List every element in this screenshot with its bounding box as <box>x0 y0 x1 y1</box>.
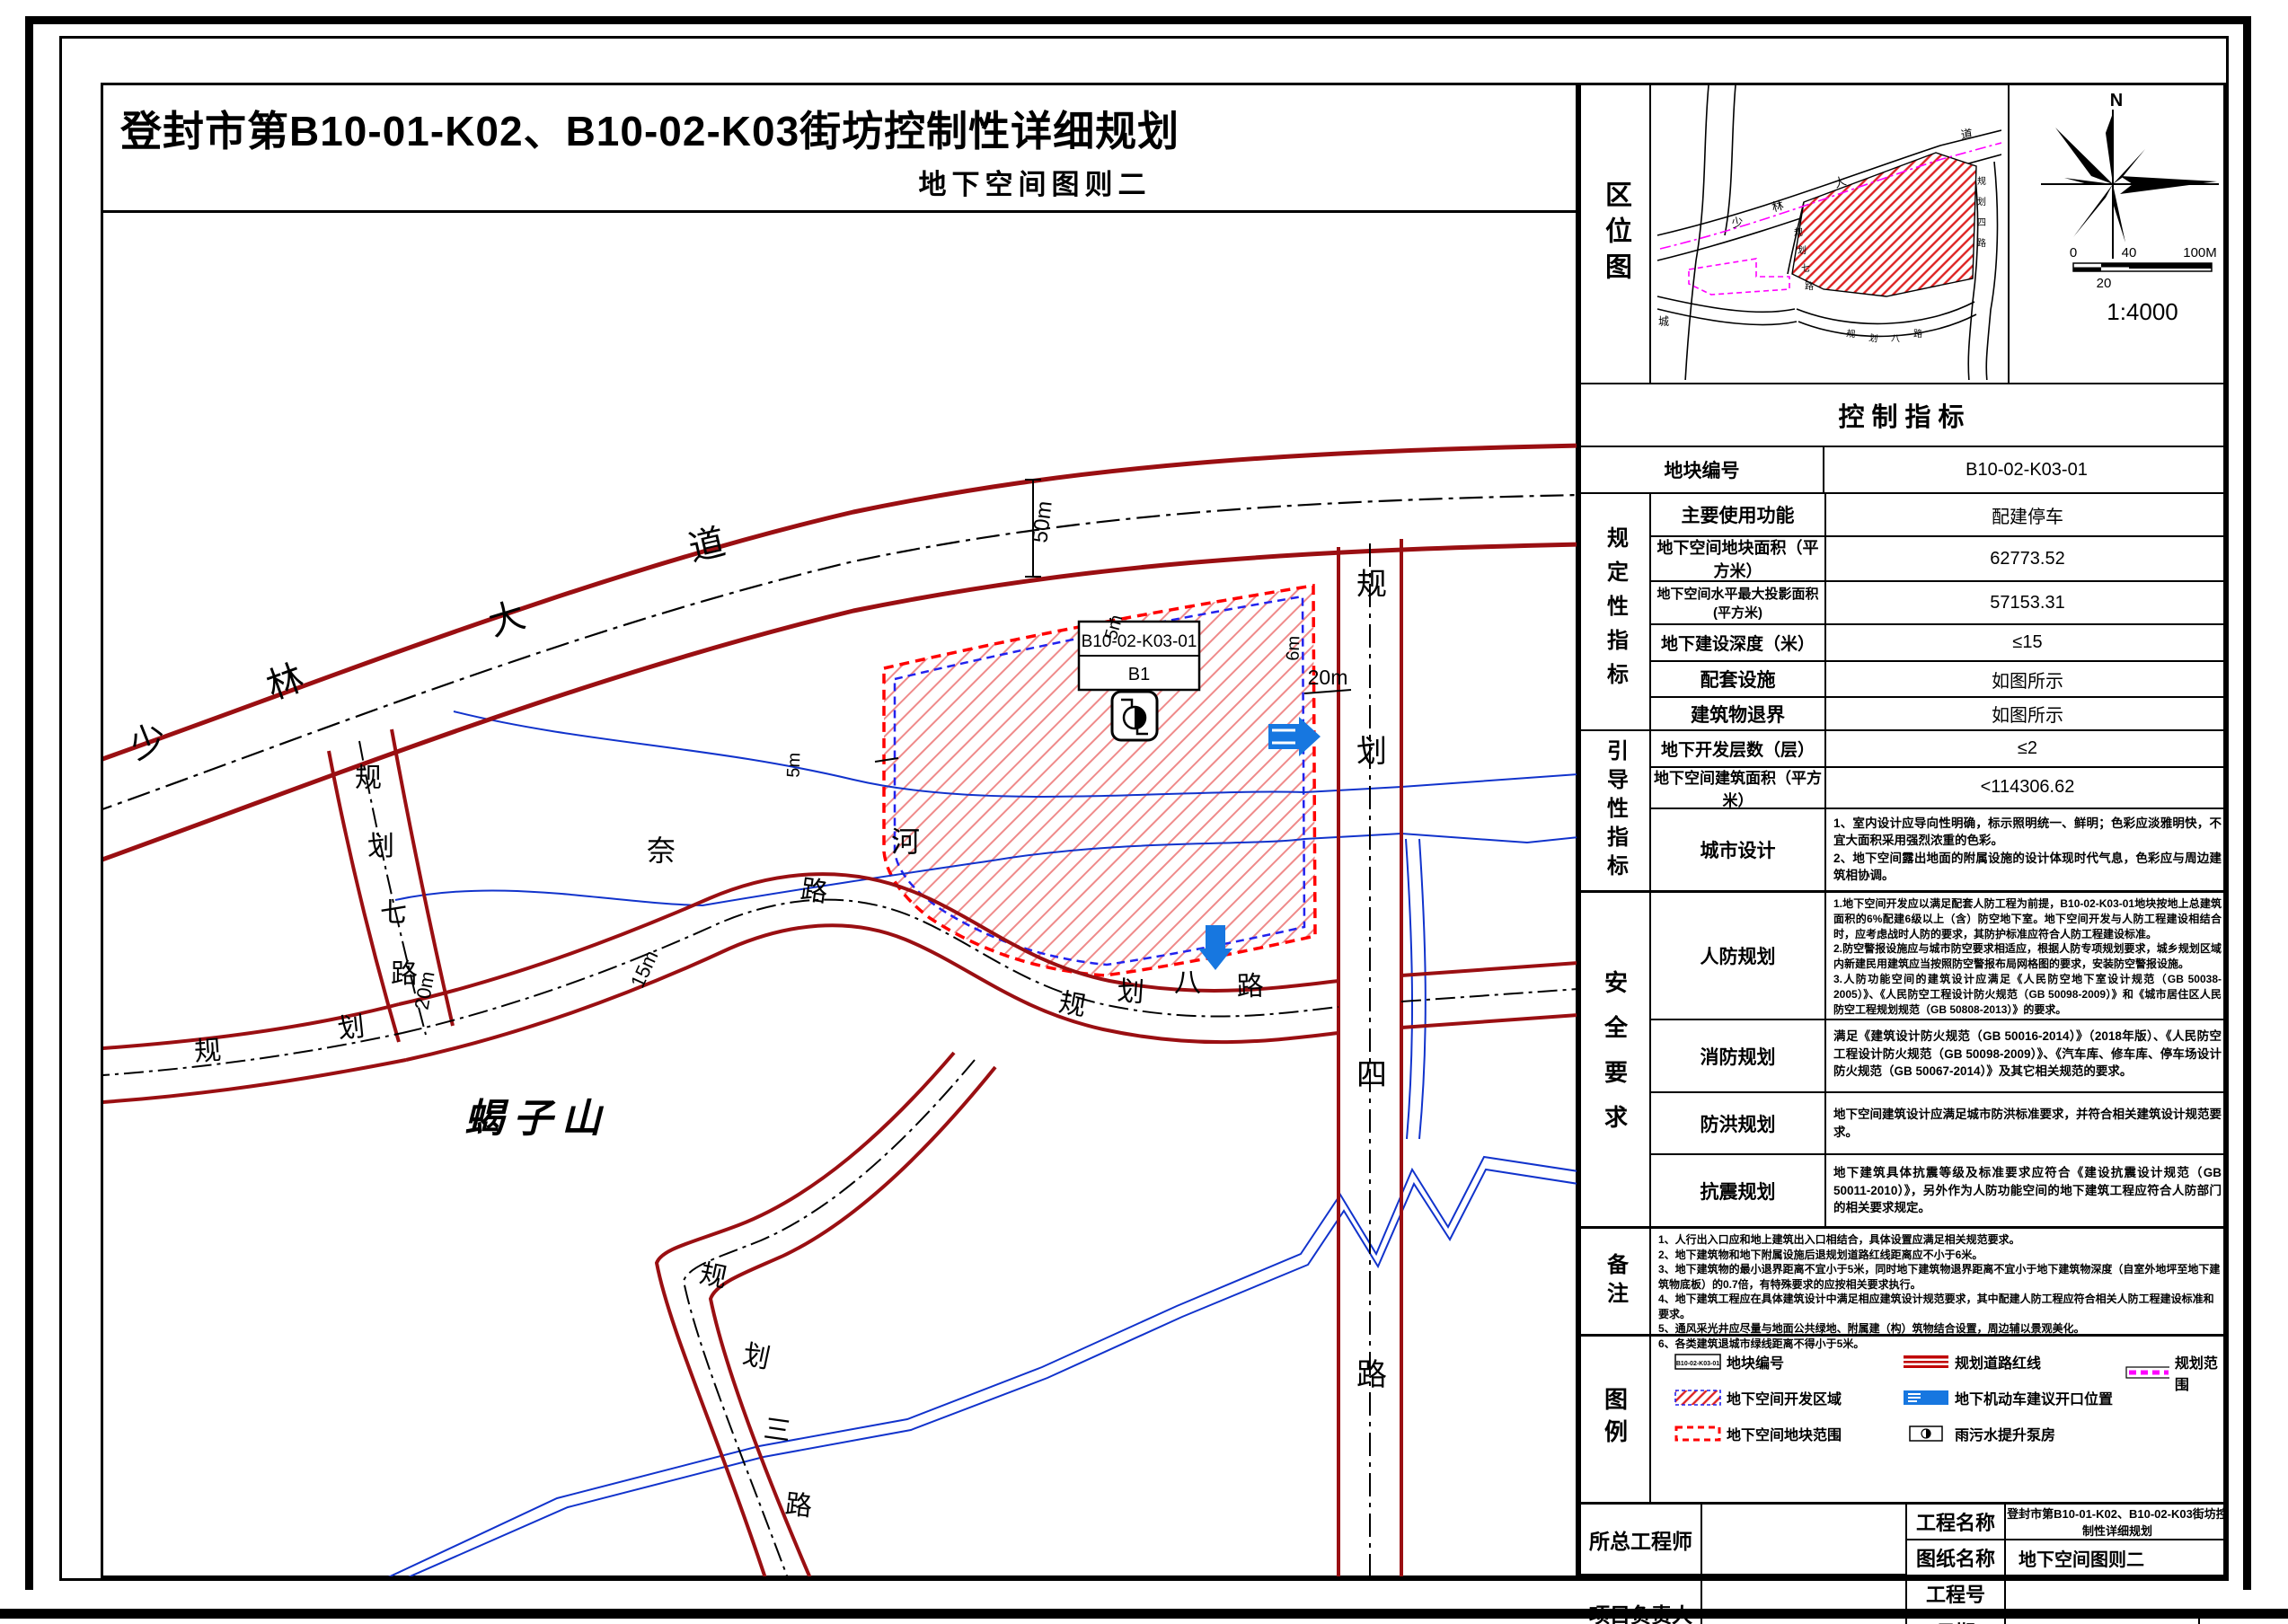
row-value: ≤2 <box>1826 731 2229 766</box>
drawing-name-label: 图纸名称 <box>1907 1540 2006 1575</box>
road-guihua8 <box>90 874 1578 1103</box>
plot-code-value: B10-02-K03-01 <box>1824 447 2229 492</box>
map-dimension-label: 15m <box>626 947 663 991</box>
plan-sheet: 登封市第B10-01-K02、B10-02-K03街坊控制性详细规划 地下空间图… <box>0 0 2288 1624</box>
map-dimension-label: 50m <box>1028 499 1056 544</box>
group-safety: 安全要求 <box>1581 893 1651 1226</box>
date-value: 2020.09 <box>2006 1612 2200 1624</box>
map-road-label: 规 <box>1056 988 1088 1022</box>
row-label: 地下空间水平最大投影面积(平方米) <box>1651 582 1826 623</box>
map-road-label: 奈 <box>647 834 676 867</box>
location-map-cell <box>1651 85 2010 383</box>
map-road-label: 路 <box>1356 1358 1387 1392</box>
legend-label: 图例 <box>1581 1337 1651 1502</box>
map-road-label: 划 <box>336 1012 366 1045</box>
legend-item: 地下机动车建议开口位置 <box>1903 1387 2113 1408</box>
road-guihua3-centerline <box>684 1060 975 1578</box>
row-label: 地下空间地块面积（平方米） <box>1651 537 1826 580</box>
map-road-label: 道 <box>685 522 729 569</box>
road-redline-icon <box>1903 1354 1949 1370</box>
legend-item: 规划范围 <box>2125 1351 2229 1394</box>
legend-item: 雨污水提升泵房 <box>1903 1423 2055 1444</box>
map-road-label: 八 <box>1174 968 1201 998</box>
row-label: 城市设计 <box>1651 809 1826 890</box>
row-label: 消防规划 <box>1651 1020 1826 1091</box>
drawing-name-value: 地下空间图则二 <box>2006 1540 2229 1575</box>
group-guiding: 引导性指标 <box>1581 731 1651 890</box>
row-value: ≤15 <box>1826 625 2229 659</box>
plot-code-text: B10-02-K03-01 <box>1082 632 1197 651</box>
river-south-channel <box>386 1157 1578 1578</box>
project-number-value <box>2006 1576 2229 1611</box>
map-road-label: 大 <box>484 596 530 644</box>
plot-label-box: B10-02-K03-01 B1 <box>1079 622 1199 690</box>
map-road-label: 蝎子山 <box>464 1097 610 1141</box>
project-number-label: 工程号 <box>1907 1576 2006 1611</box>
map-road-label: 路 <box>1236 971 1264 1002</box>
legend-item: 地下空间地块范围 <box>1674 1423 1842 1444</box>
map-road-label: 三 <box>762 1414 792 1447</box>
project-manager-value <box>1702 1575 1907 1624</box>
chief-engineer-value <box>1702 1505 1907 1574</box>
row-label: 防洪规划 <box>1651 1093 1826 1153</box>
urban-design-text: 1、室内设计应导向性明确，标示照明统一、鲜明；色彩应淡雅明快，不宜大面积采用强烈… <box>1826 809 2229 890</box>
project-name-value: 登封市第B10-01-K02、B10-02-K03街坊控制性详细规划 <box>2006 1505 2229 1539</box>
plot-scope-icon <box>1674 1425 1721 1442</box>
row-value: 如图所示 <box>1826 662 2229 696</box>
seismic-text: 地下建筑具体抗震等级及标准要求应符合《建设抗震设计规范（GB 50011-201… <box>1826 1155 2229 1226</box>
map-road-label: 七 <box>380 898 407 928</box>
pump-house-icon <box>1903 1425 1949 1442</box>
plot-code-symbol-icon: B10-02-K03-01 <box>1674 1354 1721 1370</box>
date-label: 日期 <box>1907 1612 2006 1624</box>
map-road-label: 划 <box>1117 976 1145 1008</box>
row-value: 配建停车 <box>1826 494 2229 535</box>
map-road-label: 四 <box>1356 1058 1387 1092</box>
plot-code-label: 地块编号 <box>1581 447 1824 492</box>
legend-items: B10-02-K03-01 地块编号 规划道路红线 规划范围 地下空间开发区域 <box>1651 1337 2229 1502</box>
legend-item: 规划道路红线 <box>1903 1351 2041 1372</box>
group-regulatory: 规定性指标 <box>1581 494 1651 729</box>
right-panel: 区位图 控制指标 地块编号 B10-02-K03-01 规定性指标 主要使用功能… <box>1578 83 2226 1578</box>
svg-text:B10-02-K03-01: B10-02-K03-01 <box>1676 1361 1719 1367</box>
pump-station-icon <box>1112 692 1157 740</box>
map-road-label: 河 <box>891 825 920 858</box>
flood-control-text: 地下空间建筑设计应满足城市防洪标准要求，并符合相关建筑设计规范要求。 <box>1826 1093 2229 1153</box>
row-label: 地下空间建筑面积（平方米） <box>1651 768 1826 808</box>
map-road-label: 规 <box>697 1258 729 1293</box>
row-value: <114306.62 <box>1826 768 2229 808</box>
notes-text: 1、人行出入口应和地上建筑出入口相结合，具体设置应满足相关规范要求。 2、地下建… <box>1651 1229 2229 1334</box>
compass-cell <box>2010 85 2229 383</box>
row-value: 62773.52 <box>1826 537 2229 580</box>
row-label: 人防规划 <box>1651 893 1826 1019</box>
row-label: 建筑物退界 <box>1651 698 1826 729</box>
planning-scope-icon <box>2125 1364 2169 1381</box>
vehicle-access-icon <box>1903 1390 1949 1406</box>
map-road-label: 规 <box>355 763 382 793</box>
legend-item: 地下空间开发区域 <box>1674 1387 1842 1408</box>
row-label: 配套设施 <box>1651 662 1826 696</box>
fire-protection-text: 满足《建筑设计防火规范（GB 50016-2014）》（2018年版）、《人民防… <box>1826 1020 2229 1091</box>
road-guihua3 <box>657 1053 995 1578</box>
row-value: 57153.31 <box>1826 582 2229 623</box>
dev-area-icon <box>1674 1390 1721 1406</box>
plot-sub-text: B1 <box>1128 665 1150 684</box>
chief-engineer-label: 所总工程师 <box>1581 1505 1702 1574</box>
notes-label: 备注 <box>1581 1229 1651 1334</box>
civil-defense-text: 1.地下空间开发应以满足配套人防工程为前提，B10-02-K03-01地块按地上… <box>1826 893 2229 1019</box>
map-road-label: 少 <box>124 717 172 767</box>
map-dimension-label: 6m <box>1284 636 1304 662</box>
map-road-label: 规 <box>193 1036 222 1067</box>
page-number: 11 <box>2200 1612 2229 1624</box>
map-road-label: 规 <box>1356 568 1387 602</box>
row-value: 如图所示 <box>1826 698 2229 729</box>
map-road-label: 划 <box>740 1339 773 1374</box>
map-road-label: 划 <box>1356 735 1387 769</box>
indicators-header: 控制指标 <box>1581 384 2229 447</box>
map-dimension-label: 5m <box>784 753 805 779</box>
road-shaolin-avenue <box>90 446 1581 864</box>
project-name-label: 工程名称 <box>1907 1505 2006 1539</box>
location-map-label: 区位图 <box>1581 85 1651 383</box>
row-label: 抗震规划 <box>1651 1155 1826 1226</box>
row-label: 地下开发层数（层） <box>1651 731 1826 766</box>
project-manager-label: 项目负责人 <box>1581 1575 1702 1624</box>
row-label: 地下建设深度（米） <box>1651 625 1826 659</box>
map-road-label: 路 <box>799 875 829 908</box>
row-label: 主要使用功能 <box>1651 494 1826 535</box>
legend-item: B10-02-K03-01 地块编号 <box>1674 1351 1784 1372</box>
map-road-label: 划 <box>367 832 394 861</box>
map-dimension-label: 20m <box>1308 666 1348 689</box>
map-road-label: 路 <box>783 1490 813 1522</box>
